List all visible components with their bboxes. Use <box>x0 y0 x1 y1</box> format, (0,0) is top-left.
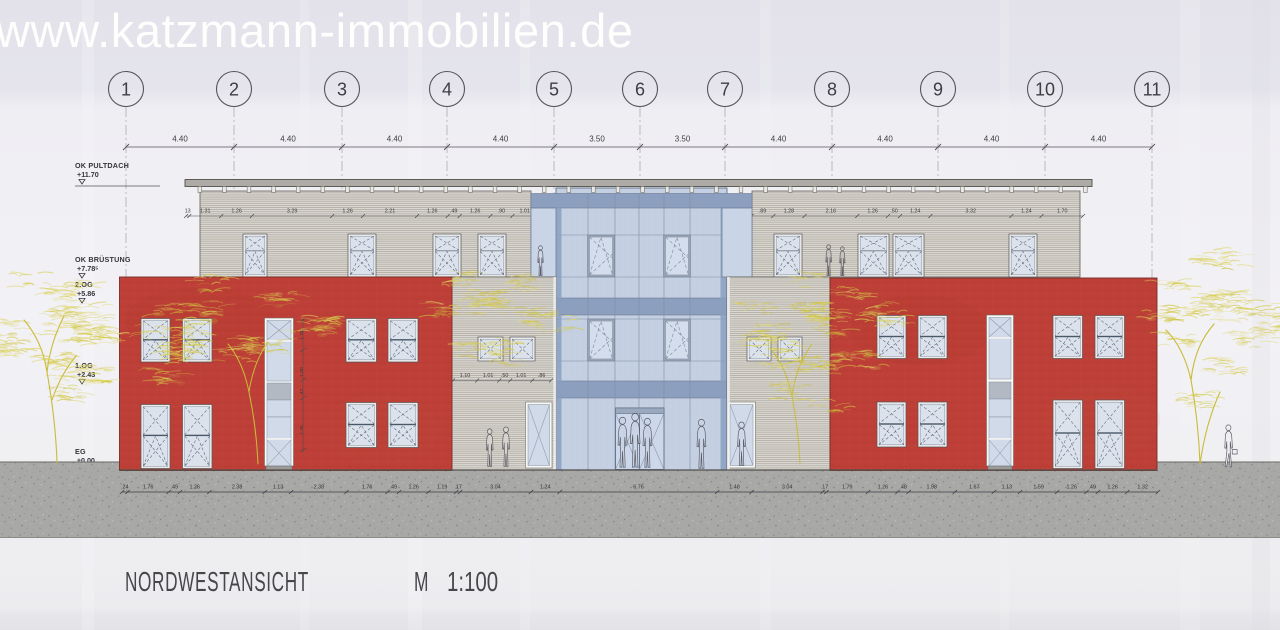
svg-text:1.13: 1.13 <box>1002 485 1013 491</box>
svg-text:6: 6 <box>635 80 645 100</box>
svg-text:1.48: 1.48 <box>729 485 740 491</box>
svg-text:3.32: 3.32 <box>966 209 977 215</box>
svg-text:6.76: 6.76 <box>633 485 644 491</box>
svg-text:1.26: 1.26 <box>878 485 889 491</box>
svg-text:1.59: 1.59 <box>1033 485 1044 491</box>
svg-text:.86: .86 <box>538 373 546 379</box>
svg-text:OK PULTDACH: OK PULTDACH <box>75 161 129 170</box>
svg-text:3.04: 3.04 <box>490 485 501 491</box>
svg-text:4.40: 4.40 <box>280 135 296 144</box>
svg-text:2.21: 2.21 <box>385 209 396 215</box>
svg-text:2.16: 2.16 <box>826 209 837 215</box>
svg-text:1.26: 1.26 <box>1107 485 1118 491</box>
svg-text:3.04: 3.04 <box>782 485 793 491</box>
svg-text:1:100: 1:100 <box>447 567 498 598</box>
svg-text:.49: .49 <box>171 485 179 491</box>
svg-text:.24: .24 <box>121 485 129 491</box>
svg-text:1: 1 <box>121 80 131 100</box>
svg-text:1.26: 1.26 <box>470 209 481 215</box>
svg-text:1.76: 1.76 <box>299 425 305 435</box>
svg-text:3.50: 3.50 <box>675 135 691 144</box>
svg-text:4.40: 4.40 <box>877 135 893 144</box>
svg-text:4.40: 4.40 <box>493 135 509 144</box>
svg-text:+5.86: +5.86 <box>77 289 95 298</box>
svg-text:.90: .90 <box>498 209 506 215</box>
svg-text:.17: .17 <box>821 485 829 491</box>
svg-text:1.79: 1.79 <box>842 485 853 491</box>
svg-text:1.26: 1.26 <box>231 209 242 215</box>
svg-text:11: 11 <box>1143 80 1162 100</box>
svg-text:8: 8 <box>827 80 837 100</box>
svg-text:9: 9 <box>933 80 943 100</box>
svg-text:2.38: 2.38 <box>232 485 243 491</box>
svg-text:+7.78⁵: +7.78⁵ <box>77 264 99 273</box>
svg-text:1.26: 1.26 <box>189 485 200 491</box>
svg-text:1.01: 1.01 <box>483 373 494 379</box>
svg-text:1.26: 1.26 <box>867 209 878 215</box>
svg-text:1.67: 1.67 <box>969 485 980 491</box>
svg-text:1.76: 1.76 <box>143 485 154 491</box>
svg-text:.49: .49 <box>1088 485 1096 491</box>
svg-text:1.01: 1.01 <box>516 373 527 379</box>
svg-text:1.01: 1.01 <box>519 209 530 215</box>
svg-text:1.31: 1.31 <box>200 209 211 215</box>
svg-text:4.40: 4.40 <box>1091 135 1107 144</box>
svg-text:+11.70: +11.70 <box>77 170 99 179</box>
svg-text:.50: .50 <box>890 209 898 215</box>
svg-text:NORDWESTANSICHT: NORDWESTANSICHT <box>125 566 309 597</box>
svg-text:1.10: 1.10 <box>460 373 471 379</box>
svg-text:1.24: 1.24 <box>910 209 921 215</box>
svg-text:1.26: 1.26 <box>342 209 353 215</box>
svg-text:1.28: 1.28 <box>784 209 795 215</box>
svg-text:1.26: 1.26 <box>427 209 438 215</box>
svg-text:10: 10 <box>1035 80 1055 100</box>
svg-text:.49: .49 <box>450 209 458 215</box>
svg-text:1.32: 1.32 <box>1137 485 1148 491</box>
svg-text:4.40: 4.40 <box>387 135 403 144</box>
svg-text:.42: .42 <box>299 388 305 395</box>
svg-text:1.26: 1.26 <box>408 485 419 491</box>
svg-text:OK BRÜSTUNG: OK BRÜSTUNG <box>75 255 131 264</box>
svg-text:1.19: 1.19 <box>437 485 448 491</box>
svg-text:2: 2 <box>229 80 239 100</box>
svg-text:2.38: 2.38 <box>314 485 325 491</box>
svg-text:.49: .49 <box>390 485 398 491</box>
svg-text:4.40: 4.40 <box>771 135 787 144</box>
svg-text:.89: .89 <box>759 209 767 215</box>
svg-text:7: 7 <box>720 80 730 100</box>
svg-text:1.24: 1.24 <box>1021 209 1032 215</box>
svg-text:www.katzmann-immobilien.de: www.katzmann-immobilien.de <box>0 4 633 57</box>
svg-text:5: 5 <box>549 80 559 100</box>
svg-text:.50: .50 <box>501 373 509 379</box>
svg-text:4.40: 4.40 <box>172 135 188 144</box>
svg-text:4.40: 4.40 <box>984 135 1000 144</box>
svg-text:1.13: 1.13 <box>273 485 284 491</box>
svg-text:1.76: 1.76 <box>299 330 305 340</box>
svg-text:3.29: 3.29 <box>287 209 298 215</box>
svg-text:1.98: 1.98 <box>927 485 938 491</box>
svg-text:13: 13 <box>185 209 191 215</box>
svg-text:1.70: 1.70 <box>1057 209 1068 215</box>
svg-text:EG: EG <box>75 447 86 456</box>
svg-text:M: M <box>414 566 428 597</box>
svg-text:3.50: 3.50 <box>589 135 605 144</box>
svg-text:.17: .17 <box>454 485 462 491</box>
svg-text:.48: .48 <box>899 485 907 491</box>
svg-text:3: 3 <box>337 80 347 100</box>
svg-text:4: 4 <box>442 80 452 100</box>
svg-text:1.00: 1.00 <box>299 367 305 377</box>
svg-text:1.26: 1.26 <box>1067 485 1078 491</box>
svg-text:1.76: 1.76 <box>362 485 373 491</box>
svg-text:1.24: 1.24 <box>540 485 551 491</box>
